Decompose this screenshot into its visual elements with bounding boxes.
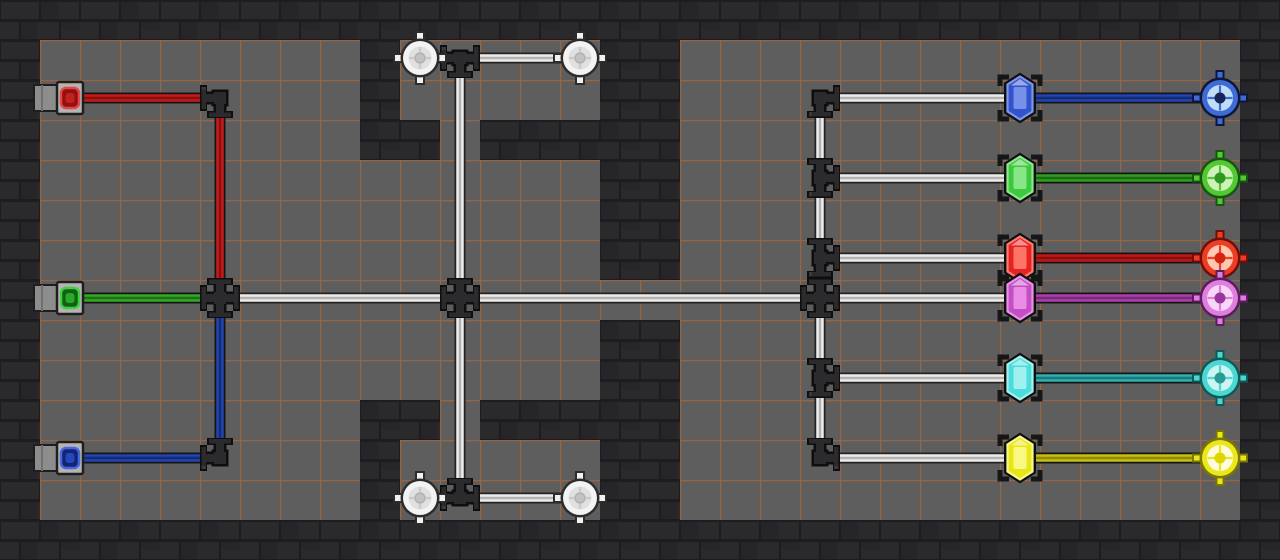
blue-inlet <box>34 442 83 474</box>
blue-gem[interactable] <box>1000 75 1040 121</box>
green-inlet <box>34 282 83 314</box>
magenta-gem[interactable] <box>1000 275 1040 321</box>
right-chamber-floor <box>680 40 1240 520</box>
cyan-gem[interactable] <box>1000 355 1040 401</box>
yellow-gem[interactable] <box>1000 435 1040 481</box>
red-inlet <box>34 82 83 114</box>
green-gem[interactable] <box>1000 155 1040 201</box>
board-canvas <box>0 0 1280 560</box>
pipe-puzzle-board <box>0 0 1280 560</box>
middle-chamber-floor <box>360 160 600 400</box>
